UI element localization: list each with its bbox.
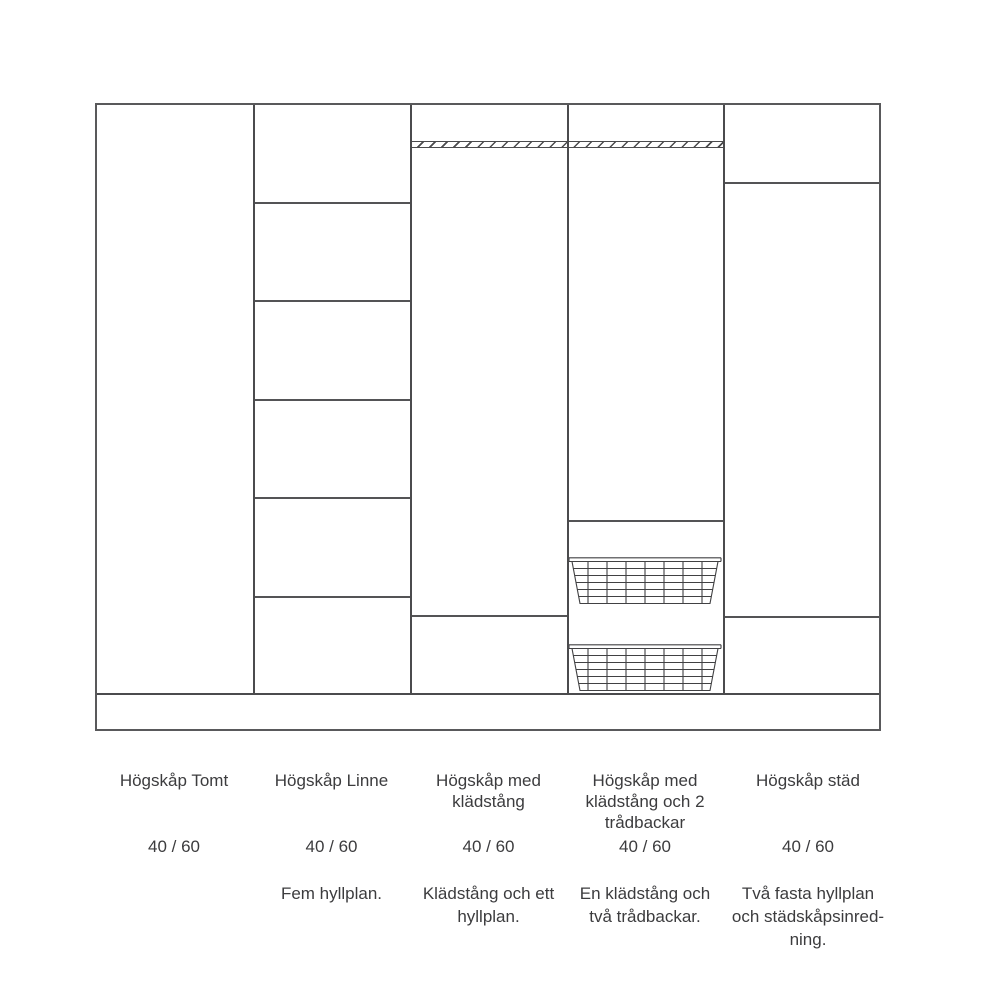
cabinet-name: Högskåp städ bbox=[712, 770, 904, 791]
column-hogskap-med-kladstang-tradbackar: Högskåp med klädstång och 2 trådbackar 4… bbox=[567, 0, 723, 1000]
cabinet-size: 40 / 60 bbox=[712, 837, 904, 856]
cabinet-size: 40 / 60 bbox=[95, 837, 253, 856]
cabinet-description: Klädstång och ett hyllplan. bbox=[410, 882, 567, 928]
cabinet-size: 40 / 60 bbox=[567, 837, 723, 856]
cabinet-description: Två fasta hyllplan och städskåpsinred- n… bbox=[712, 882, 904, 951]
page: { "colors": { "line": "#4b4b4d", "outer_… bbox=[0, 0, 1000, 1000]
column-hogskap-med-kladstang: Högskåp med klädstång 40 / 60 Klädstång … bbox=[410, 0, 567, 1000]
column-hogskap-tomt: Högskåp Tomt 40 / 60 bbox=[95, 0, 253, 1000]
cabinet-size: 40 / 60 bbox=[410, 837, 567, 856]
cabinet-name: Högskåp med klädstång och 2 trådbackar bbox=[567, 770, 723, 833]
column-hogskap-stad: Högskåp städ 40 / 60 Två fasta hyllplan … bbox=[712, 0, 904, 1000]
cabinet-name: Högskåp Tomt bbox=[95, 770, 253, 791]
cabinet-name: Högskåp med klädstång bbox=[410, 770, 567, 812]
cabinet-description: Fem hyllplan. bbox=[253, 882, 410, 905]
cabinet-description: En klädstång och två trådbackar. bbox=[567, 882, 723, 928]
column-hogskap-linne: Högskåp Linne 40 / 60 Fem hyllplan. bbox=[253, 0, 410, 1000]
cabinet-size: 40 / 60 bbox=[253, 837, 410, 856]
cabinet-name: Högskåp Linne bbox=[253, 770, 410, 791]
